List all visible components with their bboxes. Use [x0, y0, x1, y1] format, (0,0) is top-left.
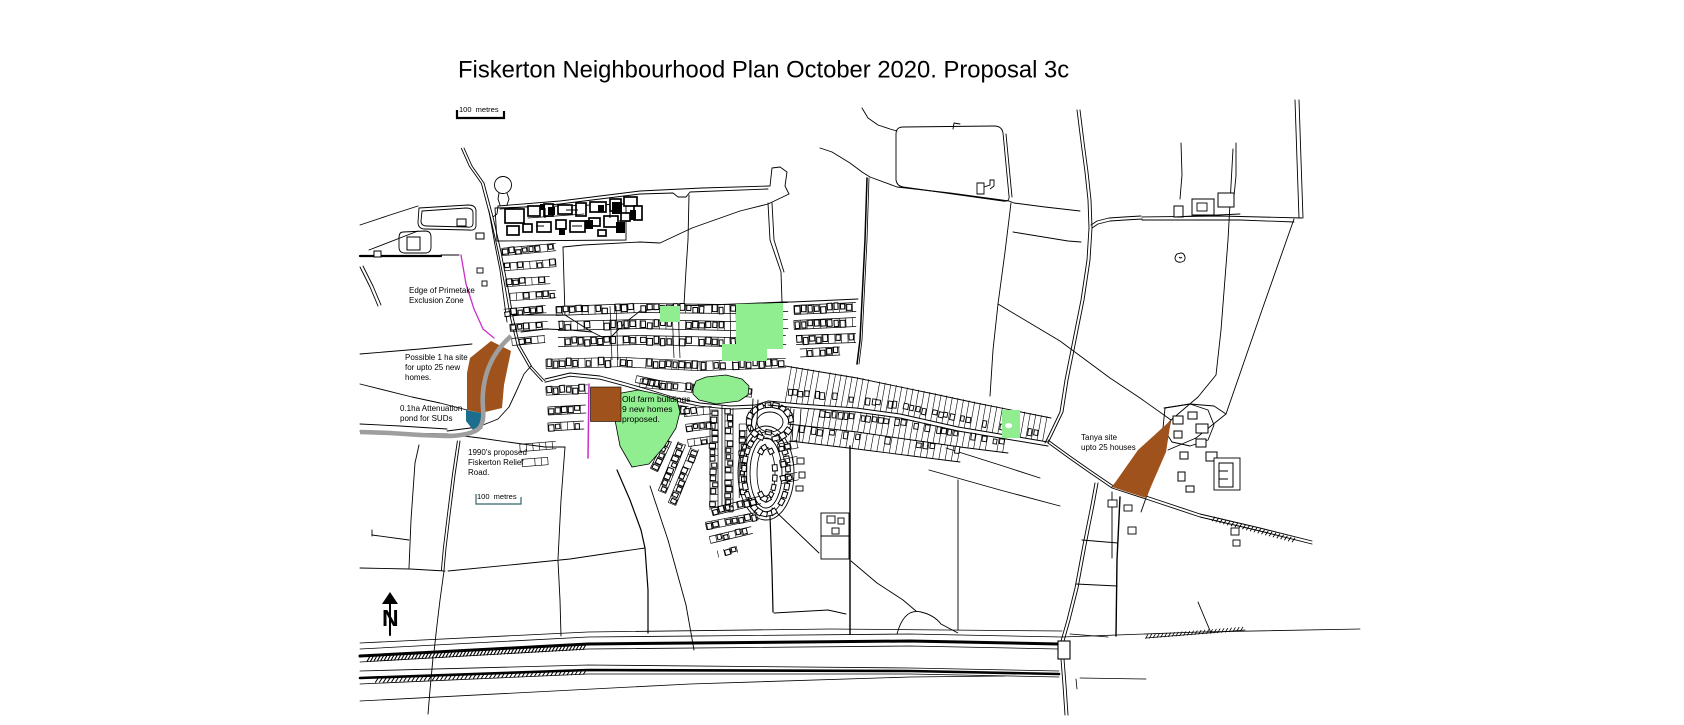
svg-text:Tanya site: Tanya site: [1081, 433, 1118, 442]
svg-text:homes.: homes.: [405, 373, 431, 382]
svg-text:Exclusion Zone: Exclusion Zone: [409, 296, 464, 305]
svg-text:9 new homes: 9 new homes: [622, 404, 673, 414]
svg-text:0.1ha Attenuation: 0.1ha Attenuation: [400, 404, 462, 413]
svg-text:100 metres: 100 metres: [477, 492, 517, 501]
svg-text:N: N: [382, 605, 399, 631]
svg-text:Old farm buildings: Old farm buildings: [622, 394, 691, 404]
svg-text:1990's proposed: 1990's proposed: [468, 448, 527, 457]
svg-text:for upto 25 new: for upto 25 new: [405, 363, 460, 372]
svg-text:100 metres: 100 metres: [459, 105, 499, 114]
svg-text:Road.: Road.: [468, 468, 489, 477]
svg-text:Fiskerton Neighbourhood Plan O: Fiskerton Neighbourhood Plan October 202…: [458, 57, 1069, 84]
svg-text:Possible 1 ha site: Possible 1 ha site: [405, 353, 468, 362]
svg-text:upto 25 houses: upto 25 houses: [1081, 443, 1136, 452]
svg-text:Edge of Primetake: Edge of Primetake: [409, 286, 475, 295]
svg-text:pond for SUDs: pond for SUDs: [400, 414, 452, 423]
svg-text:Fiskerton Relief: Fiskerton Relief: [468, 458, 524, 467]
svg-text:proposed.: proposed.: [622, 414, 660, 424]
